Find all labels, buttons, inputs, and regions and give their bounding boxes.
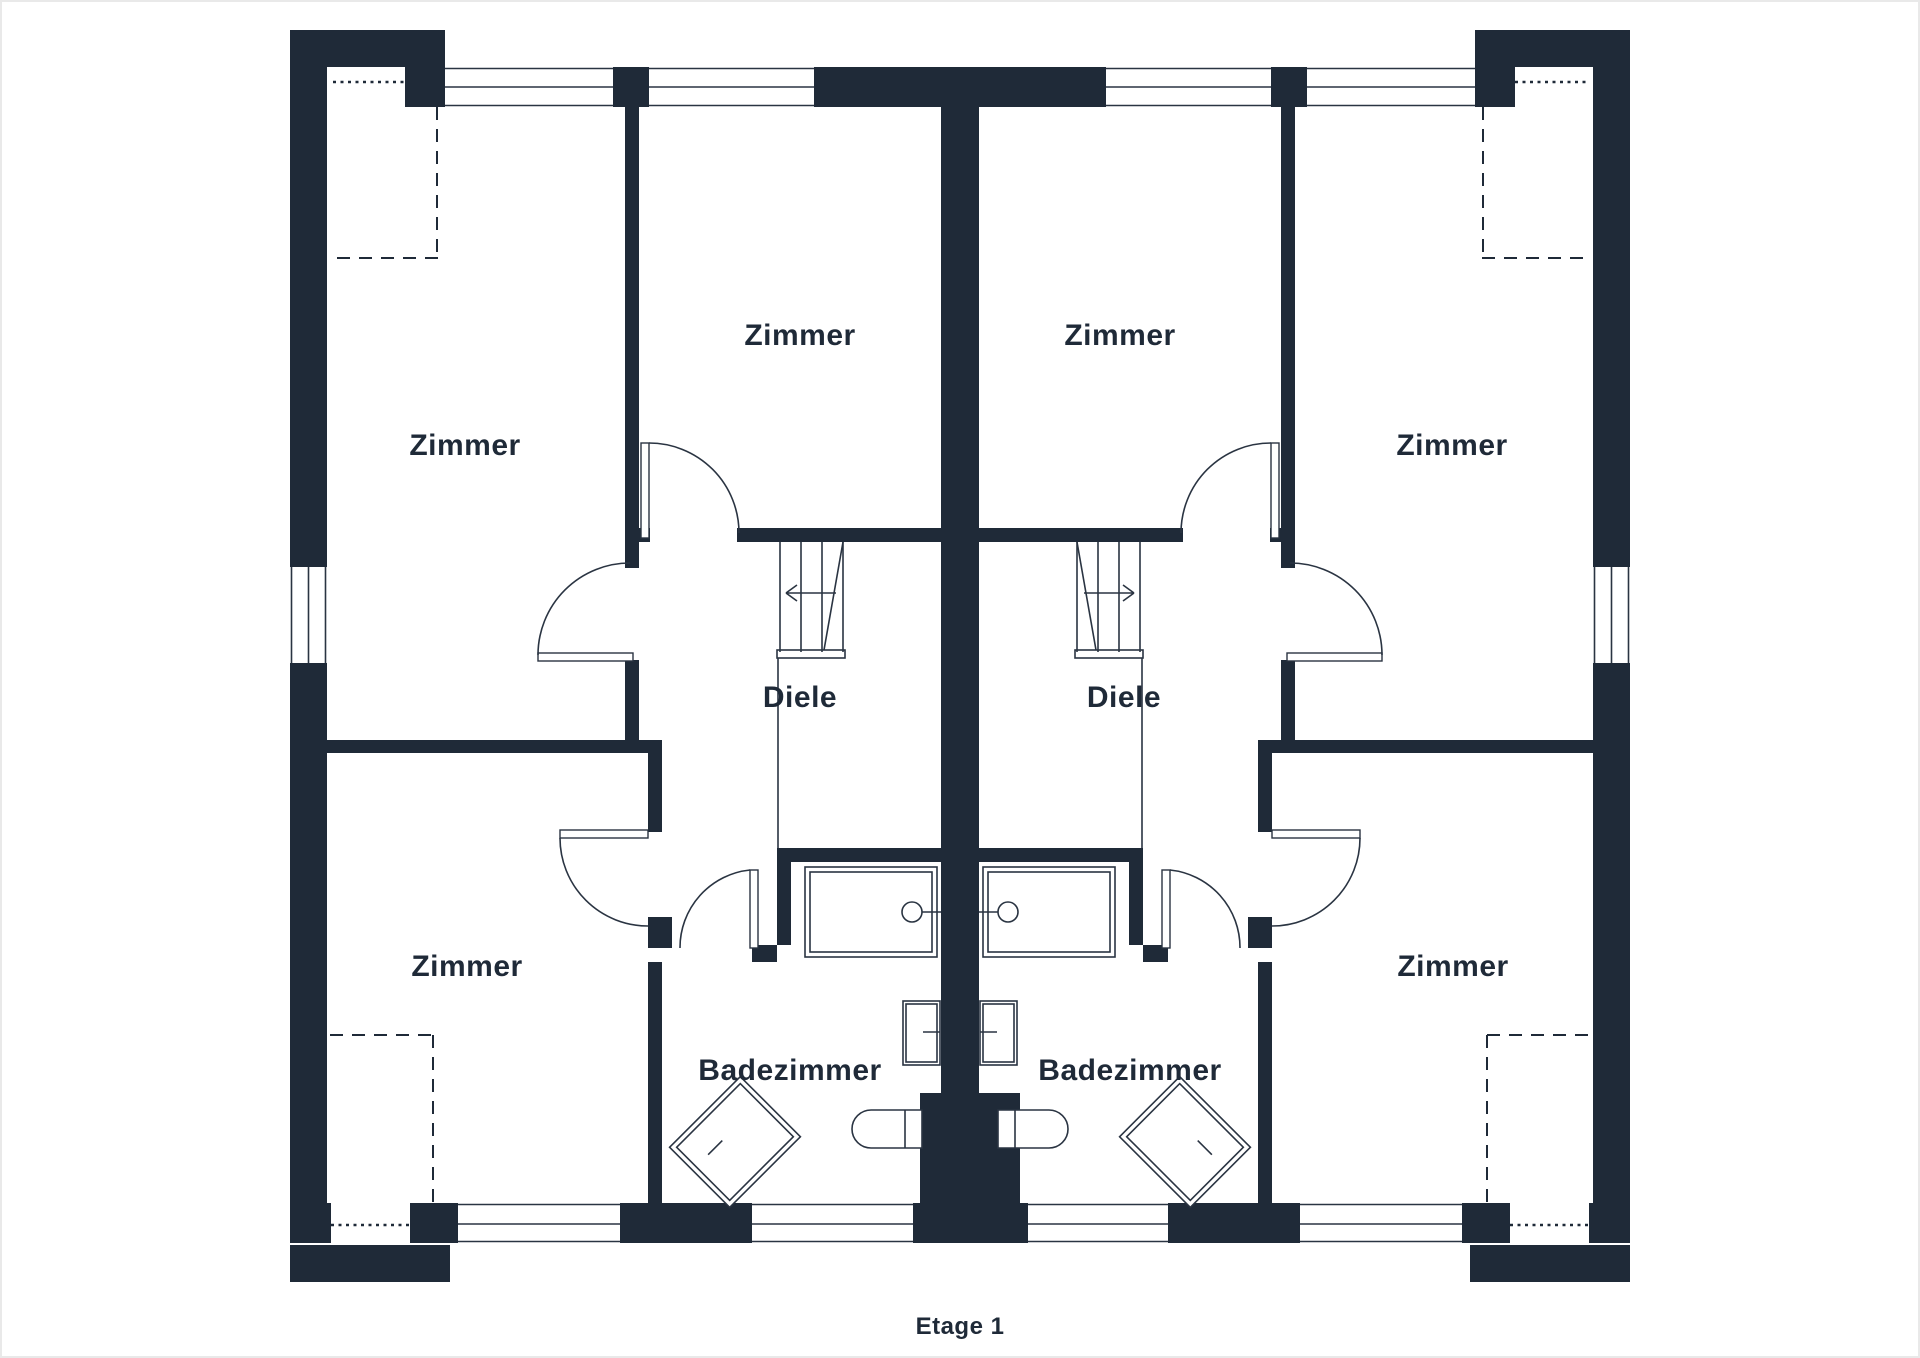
- room-label-badezimmer-right: Badezimmer: [1038, 1054, 1221, 1087]
- room-label-zimmer-ne: Zimmer: [1396, 429, 1507, 462]
- window-bottom-1: [458, 1203, 620, 1243]
- floorplan-page: Zimmer Zimmer Zimmer Zimmer Diele Diele …: [0, 0, 1920, 1358]
- door-right-se-room: [1272, 830, 1360, 926]
- window-bottom-4: [1300, 1203, 1462, 1243]
- window-top-2: [649, 67, 814, 107]
- floor-label: Etage 1: [916, 1313, 1005, 1340]
- window-top-3: [1106, 67, 1271, 107]
- window-top-4: [1307, 67, 1475, 107]
- roof-slope-outline-top-left: [330, 82, 438, 258]
- door-left-north-room: [641, 443, 739, 538]
- bathtub-left: [670, 1077, 801, 1208]
- room-label-badezimmer-left: Badezimmer: [698, 1054, 881, 1087]
- room-label-zimmer-n-left: Zimmer: [744, 319, 855, 352]
- room-label-zimmer-n-right: Zimmer: [1064, 319, 1175, 352]
- door-right-ne-room: [1287, 563, 1382, 661]
- roof-slope-outline-bottom-right: [1487, 1035, 1590, 1225]
- bathtub-right: [1120, 1077, 1251, 1208]
- room-label-diele-right: Diele: [1087, 681, 1161, 714]
- door-right-north-room: [1181, 443, 1279, 538]
- door-right-bathroom: [1162, 870, 1240, 948]
- door-left-bathroom: [680, 870, 758, 948]
- floorplan-drawing: Zimmer Zimmer Zimmer Zimmer Diele Diele …: [0, 0, 1920, 1358]
- window-top-1: [445, 67, 613, 107]
- room-label-zimmer-se: Zimmer: [1397, 950, 1508, 983]
- window-left: [290, 567, 327, 663]
- room-label-zimmer-nw: Zimmer: [409, 429, 520, 462]
- door-left-sw-room: [560, 830, 648, 926]
- toilet-right: [998, 1110, 1068, 1148]
- shower-right: [979, 867, 1115, 957]
- toilet-left: [852, 1110, 922, 1148]
- interior-walls-right: [979, 107, 1593, 1203]
- door-left-nw-room: [538, 563, 633, 661]
- interior-walls-left: [327, 107, 941, 1203]
- sink-left: [903, 1001, 940, 1065]
- shower-left: [805, 867, 941, 957]
- sink-right: [980, 1001, 1017, 1065]
- window-bottom-2: [752, 1203, 913, 1243]
- roof-slope-outline-top-right: [1482, 82, 1590, 258]
- roof-slope-outline-bottom-left: [330, 1035, 433, 1225]
- room-label-zimmer-sw: Zimmer: [411, 950, 522, 983]
- room-label-diele-left: Diele: [763, 681, 837, 714]
- window-bottom-3: [1028, 1203, 1168, 1243]
- window-right: [1593, 567, 1630, 663]
